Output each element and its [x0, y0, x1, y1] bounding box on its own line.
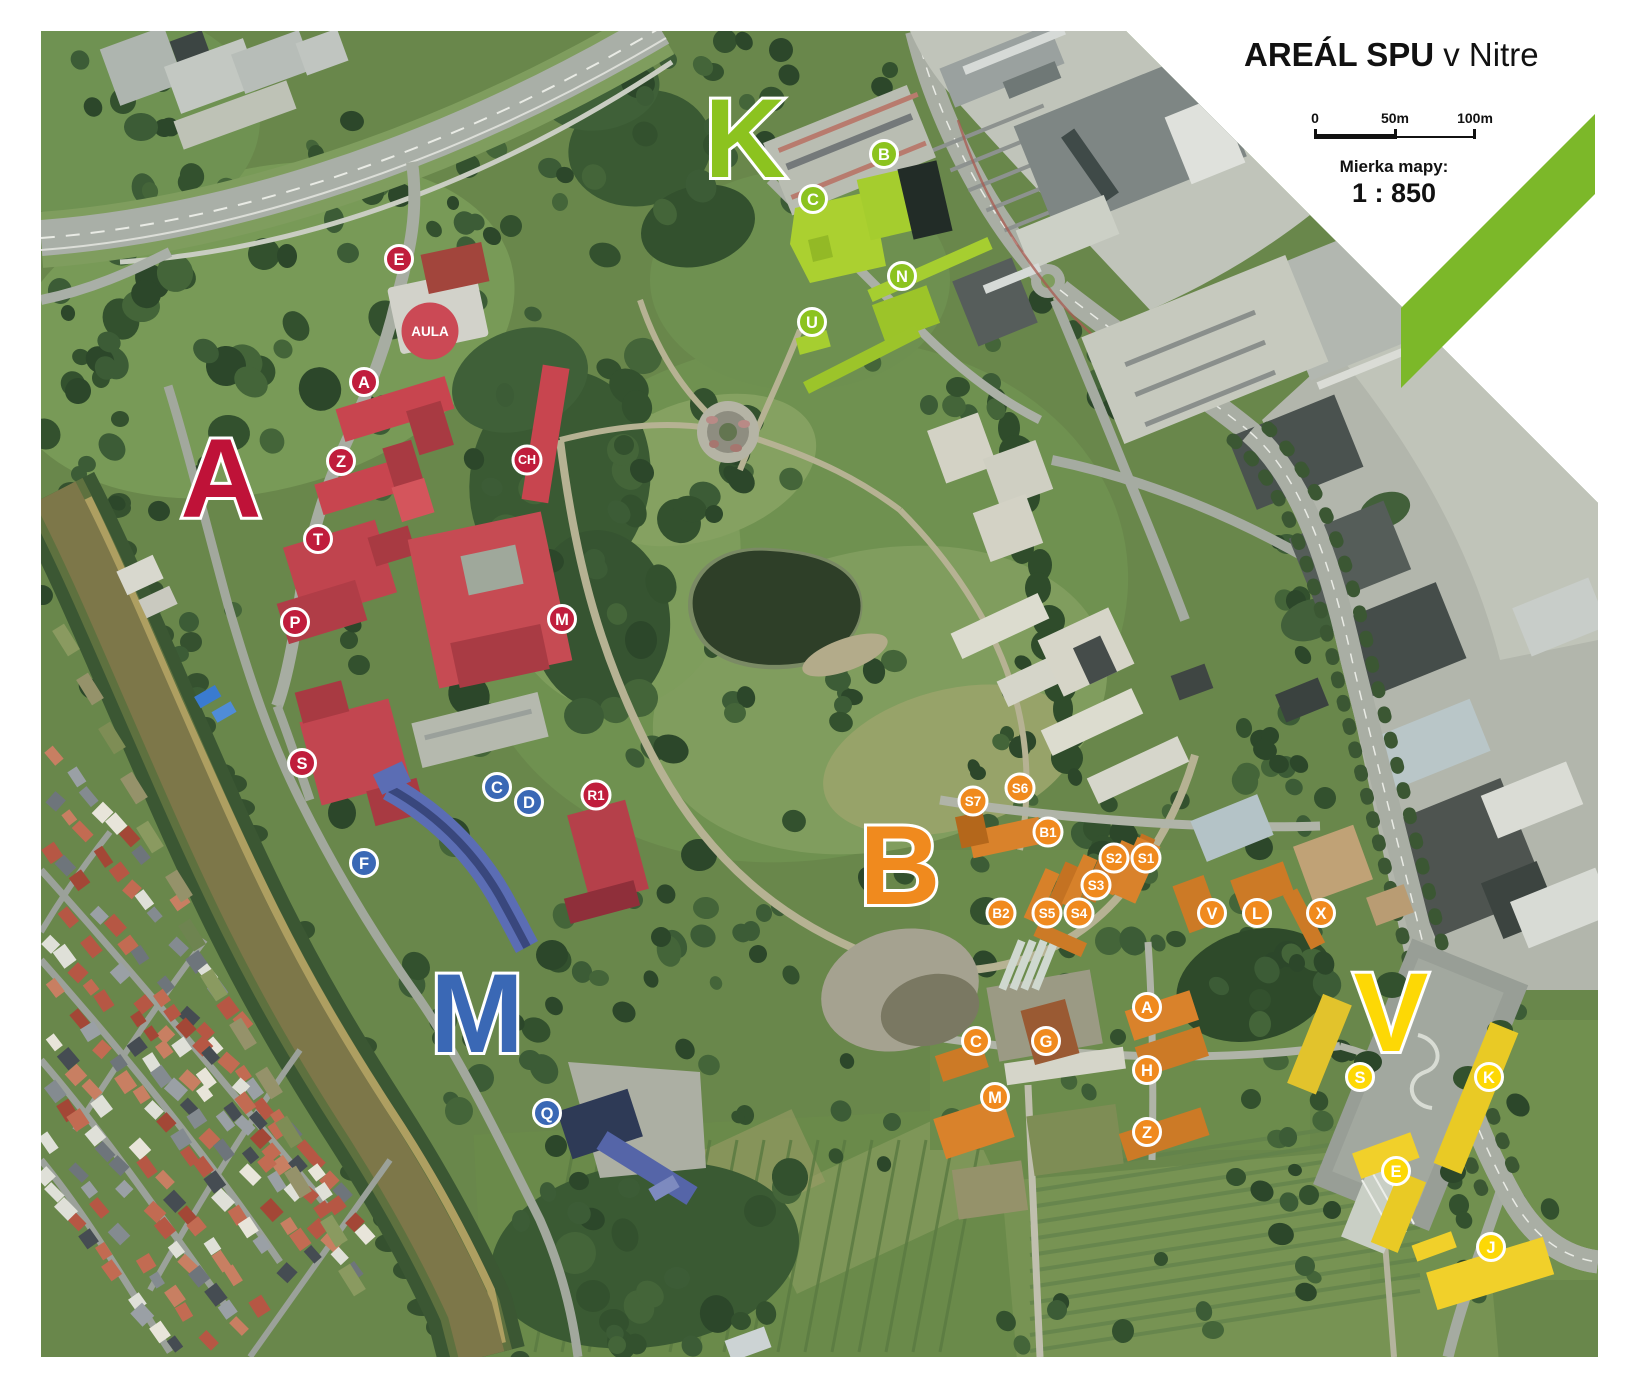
- svg-text:S: S: [296, 755, 307, 773]
- svg-text:H: H: [1141, 1062, 1153, 1080]
- svg-text:B: B: [878, 146, 890, 164]
- svg-text:S6: S6: [1012, 781, 1029, 796]
- svg-text:A: A: [358, 374, 370, 392]
- svg-text:V: V: [1206, 905, 1217, 923]
- svg-text:E: E: [1390, 1163, 1401, 1181]
- svg-text:S3: S3: [1088, 878, 1105, 893]
- svg-text:50m: 50m: [1381, 110, 1409, 126]
- svg-text:C: C: [970, 1033, 982, 1051]
- svg-text:S: S: [1354, 1069, 1365, 1087]
- svg-text:K: K: [705, 76, 786, 201]
- svg-text:V: V: [1354, 950, 1429, 1075]
- svg-text:J: J: [1486, 1239, 1495, 1257]
- svg-text:U: U: [806, 314, 818, 332]
- svg-text:A: A: [1141, 999, 1153, 1017]
- svg-text:B1: B1: [1039, 825, 1057, 840]
- svg-text:100m: 100m: [1457, 110, 1493, 126]
- svg-text:Mierka mapy:: Mierka mapy:: [1340, 157, 1449, 176]
- svg-text:C: C: [491, 779, 503, 797]
- svg-text:S1: S1: [1138, 851, 1155, 866]
- svg-text:T: T: [313, 531, 323, 549]
- svg-text:P: P: [289, 614, 300, 632]
- svg-text:S7: S7: [965, 794, 982, 809]
- svg-text:B2: B2: [992, 906, 1009, 921]
- svg-text:Z: Z: [1142, 1124, 1152, 1142]
- svg-text:S4: S4: [1071, 906, 1088, 921]
- svg-text:AULA: AULA: [411, 324, 449, 339]
- svg-text:F: F: [359, 855, 369, 873]
- svg-text:AREÁL SPU v Nitre: AREÁL SPU v Nitre: [1244, 36, 1539, 73]
- svg-text:G: G: [1040, 1033, 1053, 1051]
- svg-text:S2: S2: [1106, 851, 1123, 866]
- svg-text:L: L: [1252, 905, 1262, 923]
- svg-text:A: A: [181, 416, 262, 541]
- svg-text:0: 0: [1311, 110, 1319, 126]
- svg-text:M: M: [430, 951, 523, 1076]
- svg-text:B: B: [860, 803, 941, 928]
- svg-text:D: D: [523, 794, 535, 812]
- svg-text:1 : 850: 1 : 850: [1352, 178, 1436, 208]
- svg-text:M: M: [988, 1089, 1002, 1107]
- svg-text:M: M: [555, 611, 569, 629]
- svg-text:N: N: [896, 268, 908, 286]
- svg-text:C: C: [807, 191, 819, 209]
- svg-text:R1: R1: [587, 788, 605, 803]
- svg-text:CH: CH: [518, 453, 536, 467]
- svg-text:K: K: [1483, 1069, 1495, 1087]
- svg-text:E: E: [393, 251, 404, 269]
- svg-text:Q: Q: [541, 1105, 554, 1123]
- svg-text:Z: Z: [336, 453, 346, 471]
- svg-text:X: X: [1315, 905, 1326, 923]
- svg-text:S5: S5: [1039, 906, 1056, 921]
